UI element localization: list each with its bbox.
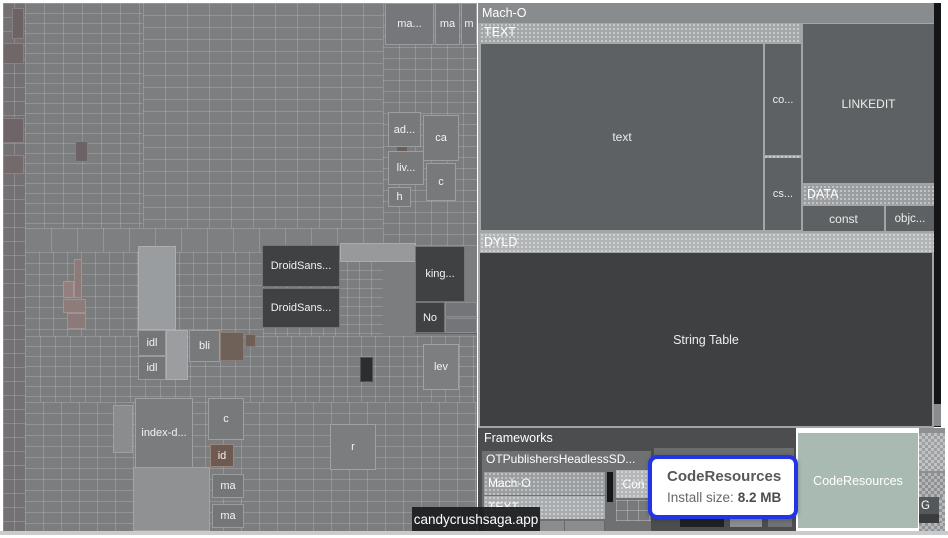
macho-region[interactable]: Mach-O TEXT text co... cs... LINKEDIT DA…: [478, 3, 934, 428]
treemap-cell-label: r: [351, 441, 355, 453]
ot-small-cells: [616, 500, 651, 521]
treemap-cell-label: ca: [435, 132, 447, 144]
selection-tooltip-size: Install size:8.2 MB: [667, 490, 794, 505]
treemap-cell[interactable]: r: [330, 424, 376, 470]
treemap-cell[interactable]: idl: [138, 356, 166, 380]
treemap-cell-label: ma: [220, 480, 235, 492]
treemap-cell[interactable]: DroidSans...: [262, 245, 340, 287]
ot-con-cell[interactable]: Con: [616, 470, 651, 498]
treemap-cell-label: h: [396, 191, 402, 203]
narrow-dark-column[interactable]: [934, 3, 941, 427]
treemap-cell[interactable]: ma: [435, 3, 460, 45]
treemap-cell-label: id: [218, 450, 227, 462]
treemap-cell-label: No: [423, 312, 437, 324]
treemap-cell[interactable]: index-d...: [135, 398, 193, 468]
cs-segment[interactable]: cs...: [765, 158, 801, 230]
treemap-cell-label: c: [223, 413, 229, 425]
narrow-column-cell[interactable]: [934, 404, 941, 426]
treemap-cell[interactable]: ad...: [388, 112, 421, 147]
treemap-cell-label: idl: [146, 337, 157, 349]
data-section-header[interactable]: DATA: [803, 185, 934, 204]
selection-tooltip-title: CodeResources: [667, 468, 794, 485]
treemap-cell[interactable]: ma: [212, 474, 244, 498]
treemap-cell-label: liv...: [397, 162, 416, 174]
small-cell[interactable]: [919, 433, 945, 471]
treemap-cell[interactable]: liv...: [388, 151, 424, 185]
treemap-cell-label: m: [464, 18, 473, 30]
const-segment[interactable]: const: [803, 206, 884, 231]
treemap-cell[interactable]: idl: [138, 330, 166, 356]
co-segment[interactable]: co...: [765, 44, 801, 155]
ot-macho-header[interactable]: Mach-O: [484, 472, 605, 495]
treemap-cell-label: king...: [425, 268, 454, 280]
objc-segment[interactable]: objc...: [886, 206, 934, 231]
string-table-segment[interactable]: String Table: [480, 253, 932, 426]
treemap-canvas: ma...mamad...caliv...chDroidSans...Droid…: [0, 0, 948, 538]
treemap-cell[interactable]: c: [426, 163, 456, 201]
treemap-cell[interactable]: DroidSans...: [262, 288, 340, 328]
treemap-cell[interactable]: id: [210, 444, 234, 467]
text-segment[interactable]: text: [481, 44, 763, 230]
install-size-value: 8.2 MB: [738, 490, 782, 505]
small-cell[interactable]: [919, 514, 939, 523]
treemap-cell[interactable]: ma: [212, 504, 244, 528]
hidden-cell: [768, 518, 792, 527]
bottom-frame-bar: [0, 531, 948, 535]
treemap-cell-label: ma...: [397, 18, 421, 30]
app-bundle-treemap[interactable]: ma...mamad...caliv...chDroidSans...Droid…: [3, 3, 477, 531]
text-section-label: TEXT: [484, 25, 516, 39]
text-section[interactable]: TEXT text co... cs...: [480, 23, 801, 232]
treemap-cell[interactable]: No: [415, 302, 445, 333]
treemap-cell-label: lev: [434, 361, 448, 373]
treemap-cell[interactable]: h: [388, 187, 411, 207]
frameworks-label: Frameworks: [484, 431, 553, 445]
right-small-column[interactable]: G: [919, 428, 945, 531]
treemap-cell-label: c: [438, 176, 444, 188]
treemap-cell[interactable]: c: [208, 398, 244, 440]
treemap-cell-label: DroidSans...: [271, 260, 332, 272]
treemap-cell-label: bli: [199, 340, 210, 352]
hover-tooltip-app-name: candycrushsaga.app: [412, 507, 540, 531]
treemap-cell[interactable]: m: [461, 3, 477, 45]
treemap-cell[interactable]: ma...: [385, 3, 434, 45]
treemap-cell[interactable]: ca: [423, 115, 459, 161]
treemap-cell-label: DroidSans...: [271, 302, 332, 314]
treemap-cell[interactable]: bli: [189, 330, 220, 362]
treemap-cell-label: ad...: [394, 124, 415, 136]
macho-header[interactable]: Mach-O: [478, 3, 934, 23]
small-cell[interactable]: [919, 523, 945, 531]
small-cell[interactable]: [919, 473, 945, 497]
g-cell[interactable]: G: [919, 497, 939, 514]
dyld-section-header[interactable]: DYLD: [480, 233, 934, 252]
ot-dark-strip: [607, 472, 613, 502]
install-size-label: Install size:: [667, 490, 734, 505]
code-resources-block[interactable]: CodeResources: [798, 433, 918, 528]
treemap-cell-label: index-d...: [141, 427, 186, 439]
treemap-cell[interactable]: lev: [423, 344, 459, 390]
treemap-cell-label: idl: [146, 362, 157, 374]
linkedit-segment[interactable]: LINKEDIT: [803, 24, 934, 183]
selection-tooltip: CodeResources Install size:8.2 MB: [648, 455, 798, 519]
treemap-cell-label: ma: [440, 18, 455, 30]
small-cell[interactable]: [939, 497, 945, 523]
treemap-cell[interactable]: king...: [415, 246, 465, 302]
treemap-cell-label: ma: [220, 510, 235, 522]
ot-publishers-sdk-label: OTPublishersHeadlessSD...: [486, 452, 648, 466]
